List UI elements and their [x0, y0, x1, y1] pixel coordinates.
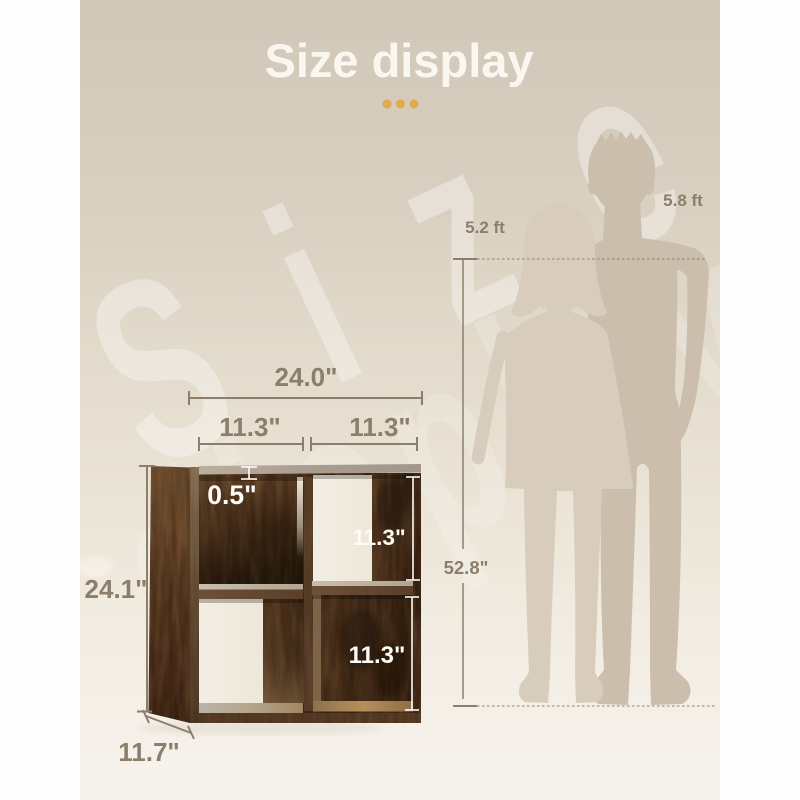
- svg-text:11.3": 11.3": [219, 412, 281, 442]
- svg-text:24.0": 24.0": [275, 362, 338, 392]
- svg-text:0.5": 0.5": [207, 480, 256, 510]
- svg-text:52.8": 52.8": [444, 557, 489, 578]
- svg-text:5.2 ft: 5.2 ft: [465, 218, 505, 237]
- svg-text:Size display: Size display: [264, 34, 533, 87]
- svg-text:5.8 ft: 5.8 ft: [663, 191, 703, 210]
- svg-text:11.3": 11.3": [349, 642, 406, 669]
- svg-text:11.3": 11.3": [349, 412, 411, 442]
- svg-text:11.3": 11.3": [352, 525, 405, 550]
- svg-text:11.7": 11.7": [118, 737, 180, 767]
- svg-text:24.1": 24.1": [85, 574, 148, 604]
